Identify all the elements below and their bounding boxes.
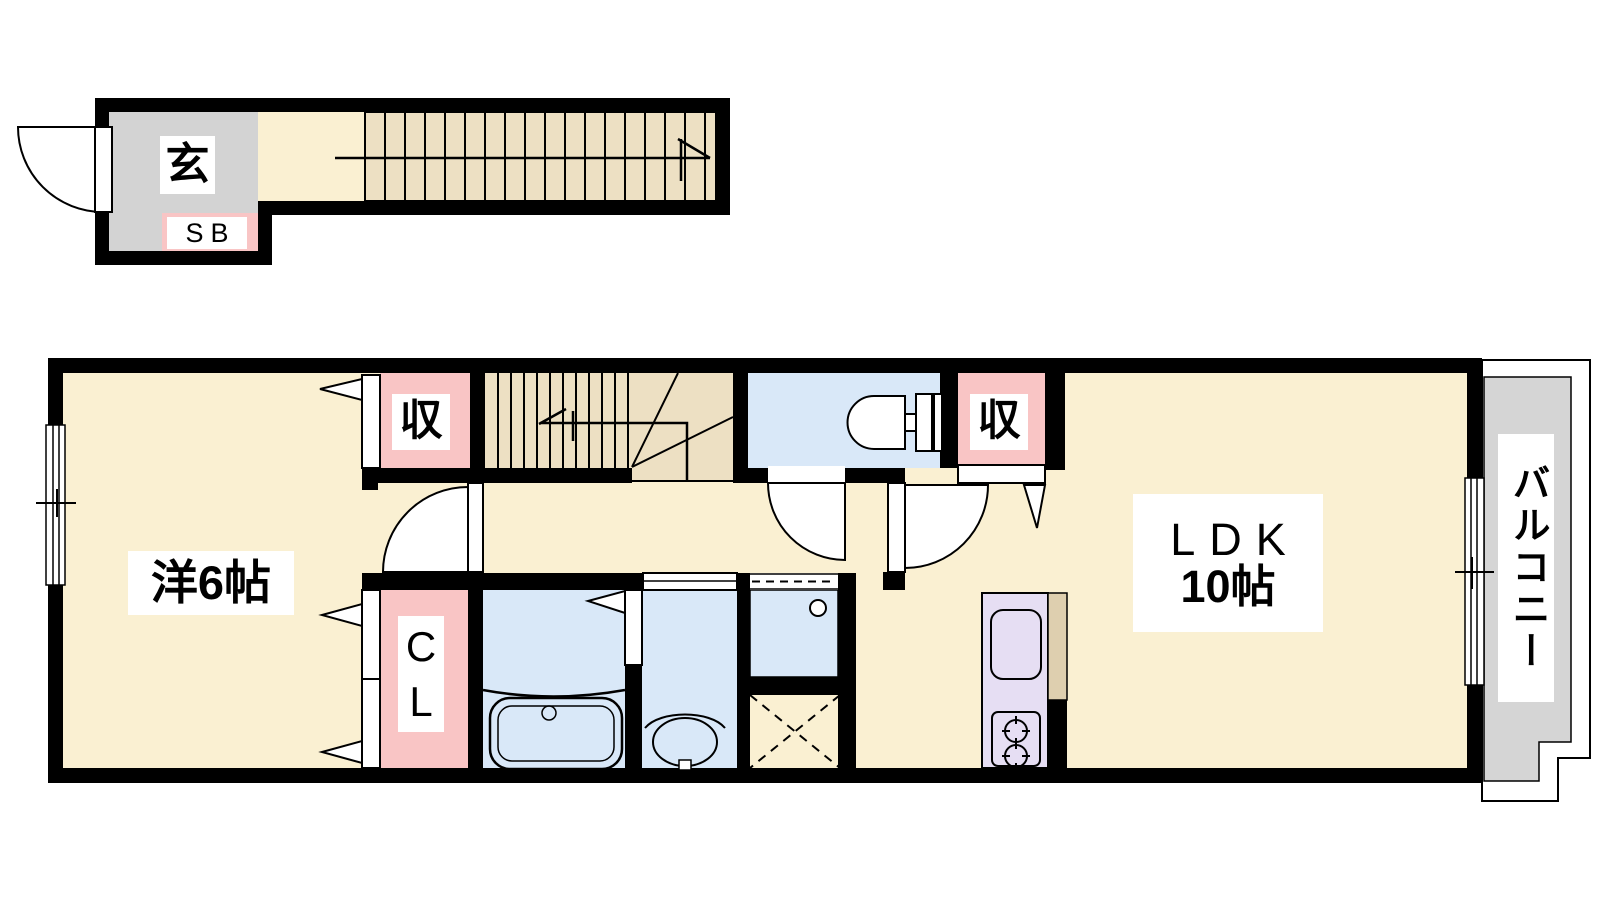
floorplan-page: 玄 SB 収 収 CL 洋6帖 LDK 10帖 バルコニー bbox=[0, 0, 1600, 900]
entrance-stair-section bbox=[18, 98, 730, 265]
storage-right-label: 収 bbox=[970, 394, 1028, 450]
floorplan-drawing bbox=[0, 0, 1600, 900]
upper-stairs-floor bbox=[365, 112, 716, 201]
inner-stairs-floor bbox=[485, 373, 733, 482]
storage-left-label: 収 bbox=[392, 394, 450, 450]
balcony-label: バルコニー bbox=[1498, 434, 1554, 702]
kitchen-side-panel bbox=[1048, 593, 1067, 700]
ldk-label: LDK 10帖 bbox=[1133, 494, 1323, 632]
closet-door-bottom bbox=[362, 679, 380, 768]
closet-door-top bbox=[362, 590, 380, 679]
storage-left-door bbox=[362, 375, 380, 468]
washer-area-opening bbox=[750, 573, 838, 590]
toilet-fixture-icon bbox=[848, 394, 942, 451]
washroom-floor bbox=[642, 590, 737, 768]
entrance-label: 玄 bbox=[160, 136, 215, 194]
entrance-door-swing bbox=[18, 127, 103, 212]
washer-drain-icon bbox=[810, 600, 826, 616]
bathroom-floor bbox=[483, 590, 625, 768]
shoebox-label: SB bbox=[167, 217, 247, 249]
ldk-door-leaf bbox=[888, 483, 905, 572]
bedroom-label: 洋6帖 bbox=[128, 551, 294, 615]
entrance-door-leaf bbox=[95, 127, 112, 212]
storage-right-door bbox=[958, 465, 1045, 483]
bathroom-door bbox=[625, 590, 642, 665]
ldk-label-size: 10帖 bbox=[1180, 563, 1275, 610]
ldk-label-name: LDK bbox=[1156, 516, 1300, 563]
stair-landing-floor bbox=[258, 112, 365, 201]
closet-label: CL bbox=[398, 616, 444, 732]
bedroom-door-leaf bbox=[468, 483, 483, 572]
